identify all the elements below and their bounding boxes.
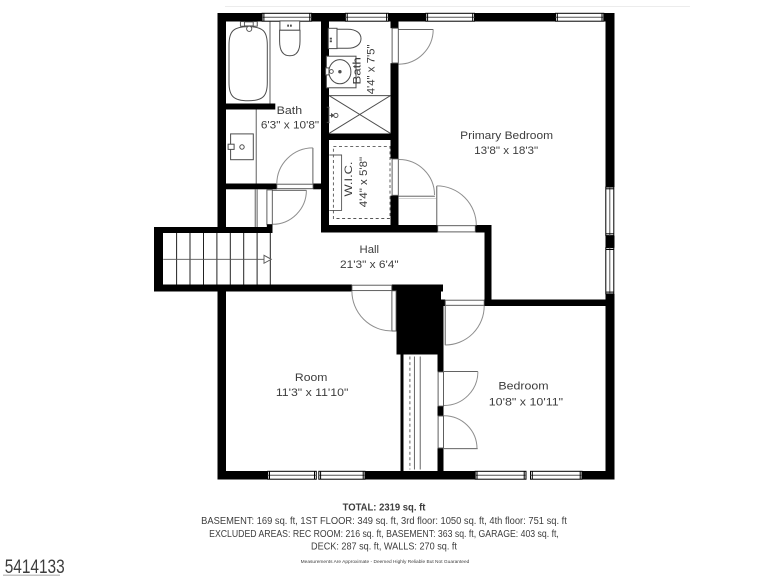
svg-text:11'3" x 11'10": 11'3" x 11'10": [276, 387, 349, 399]
svg-text:6'3" x 10'8": 6'3" x 10'8": [261, 120, 319, 132]
svg-text:BASEMENT: 169 sq. ft, 1ST FLOO: BASEMENT: 169 sq. ft, 1ST FLOOR: 349 sq.…: [201, 516, 567, 527]
svg-text:DECK: 287 sq. ft, WALLS: 270 s: DECK: 287 sq. ft, WALLS: 270 sq. ft: [311, 541, 457, 552]
svg-text:W.I.C.: W.I.C.: [343, 162, 355, 197]
svg-text:4'4" x 5'8": 4'4" x 5'8": [358, 157, 370, 207]
svg-text:21'3" x 6'4": 21'3" x 6'4": [340, 259, 399, 271]
svg-text:10'8" x 10'11": 10'8" x 10'11": [489, 397, 563, 409]
svg-text:4'4" x 7'5": 4'4" x 7'5": [365, 44, 377, 94]
svg-text:Primary Bedroom: Primary Bedroom: [460, 130, 553, 142]
svg-text:Bath: Bath: [352, 57, 364, 84]
svg-text:Room: Room: [295, 372, 328, 384]
svg-text:TOTAL: 2319 sq. ft: TOTAL: 2319 sq. ft: [343, 503, 426, 514]
svg-text:Measurements Are Approximate -: Measurements Are Approximate - Deemed Hi…: [301, 559, 470, 565]
svg-text:Bath: Bath: [277, 105, 303, 117]
svg-text:13'8" x 18'3": 13'8" x 18'3": [474, 145, 538, 157]
svg-text:5414133: 5414133: [5, 556, 65, 576]
svg-text:Bedroom: Bedroom: [498, 381, 548, 393]
svg-text:EXCLUDED AREAS: REC ROOM: 216: EXCLUDED AREAS: REC ROOM: 216 sq. ft, BA…: [209, 529, 559, 540]
svg-text:Hall: Hall: [360, 244, 380, 256]
